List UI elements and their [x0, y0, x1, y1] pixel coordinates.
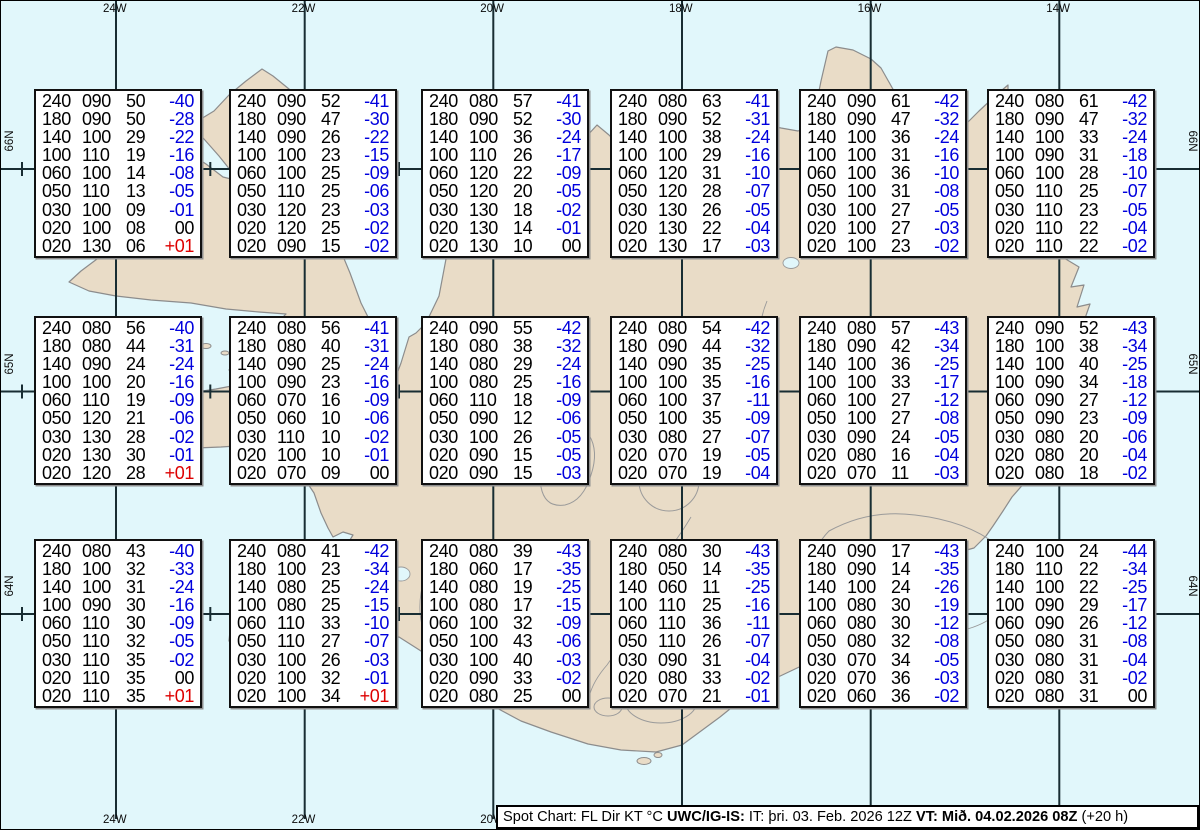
- cell-kt: 17: [513, 596, 539, 614]
- cell-dir: 100: [1035, 542, 1073, 560]
- cell-kt: 52: [321, 92, 347, 110]
- cell-fl: 140: [995, 128, 1029, 146]
- cell-temp: -26: [923, 578, 959, 596]
- cell-temp: -02: [353, 428, 389, 446]
- cell-temp: -40: [158, 319, 194, 337]
- cell-kt: 25: [702, 596, 728, 614]
- cell-temp: -35: [734, 560, 770, 578]
- cell-temp: -05: [158, 182, 194, 200]
- cell-kt: 32: [513, 614, 539, 632]
- cell-kt: 25: [321, 596, 347, 614]
- cell-dir: 110: [82, 391, 120, 409]
- cell-dir: 100: [847, 578, 885, 596]
- cell-kt: 35: [702, 355, 728, 373]
- cell-kt: 40: [321, 337, 347, 355]
- cell-temp: -02: [158, 428, 194, 446]
- cell-temp: -22: [158, 128, 194, 146]
- spot-level-row: 03012023-03: [237, 201, 389, 219]
- spot-level-row: 24009050-40: [42, 92, 194, 110]
- cell-kt: 18: [513, 391, 539, 409]
- spot-level-row: 10008030-19: [807, 596, 959, 614]
- cell-fl: 140: [618, 128, 652, 146]
- spot-level-row: 14010024-26: [807, 578, 959, 596]
- spot-box-66N-3: 24008057-4118009052-3014010036-241001102…: [421, 89, 589, 258]
- cell-kt: 20: [126, 373, 152, 391]
- cell-kt: 11: [891, 464, 917, 482]
- cell-dir: 100: [1035, 578, 1073, 596]
- cell-temp: -09: [353, 164, 389, 182]
- cell-kt: 31: [1079, 632, 1105, 650]
- cell-dir: 080: [277, 337, 315, 355]
- cell-fl: 060: [995, 614, 1029, 632]
- cell-kt: 42: [891, 337, 917, 355]
- cell-fl: 050: [429, 182, 463, 200]
- lon-label-top-18W: 18W: [669, 3, 693, 15]
- cell-temp: -19: [923, 596, 959, 614]
- cell-fl: 020: [995, 219, 1029, 237]
- cell-fl: 020: [429, 219, 463, 237]
- cell-fl: 030: [429, 428, 463, 446]
- cell-kt: 10: [321, 428, 347, 446]
- cell-temp: -02: [545, 201, 581, 219]
- spot-level-row: 02009033-02: [429, 669, 581, 687]
- cell-dir: 090: [1035, 319, 1073, 337]
- spot-level-row: 02013017-03: [618, 237, 770, 255]
- spot-level-row: 24008030-43: [618, 542, 770, 560]
- cell-fl: 030: [807, 651, 841, 669]
- spot-level-row: 02010023-02: [807, 237, 959, 255]
- cell-kt: 30: [891, 614, 917, 632]
- cell-kt: 61: [891, 92, 917, 110]
- spot-level-row: 18009050-28: [42, 110, 194, 128]
- cell-fl: 240: [618, 542, 652, 560]
- spot-level-row: 14009025-24: [237, 355, 389, 373]
- cell-kt: 26: [702, 201, 728, 219]
- spot-level-row: 10011019-16: [42, 146, 194, 164]
- cell-dir: 100: [847, 201, 885, 219]
- cell-temp: -24: [158, 355, 194, 373]
- cell-kt: 22: [1079, 219, 1105, 237]
- cell-temp: -09: [158, 391, 194, 409]
- spot-level-row: 0201103500: [42, 669, 194, 687]
- spot-level-row: 0200700900: [237, 464, 389, 482]
- spot-level-row: 02007019-05: [618, 446, 770, 464]
- cell-kt: 25: [513, 687, 539, 705]
- spot-level-row: 03009031-04: [618, 651, 770, 669]
- cell-kt: 50: [126, 92, 152, 110]
- cell-fl: 180: [42, 560, 76, 578]
- cell-dir: 110: [82, 669, 120, 687]
- cell-dir: 100: [469, 632, 507, 650]
- cell-kt: 31: [1079, 669, 1105, 687]
- cell-fl: 100: [618, 596, 652, 614]
- cell-fl: 140: [42, 578, 76, 596]
- cell-kt: 25: [321, 355, 347, 373]
- cell-dir: 110: [1035, 182, 1073, 200]
- cell-fl: 050: [807, 182, 841, 200]
- cell-fl: 020: [995, 669, 1029, 687]
- cell-fl: 020: [618, 464, 652, 482]
- cell-kt: 52: [513, 110, 539, 128]
- cell-kt: 25: [321, 219, 347, 237]
- spot-level-row: 14010033-24: [995, 128, 1147, 146]
- lat-label-right-65N: 65N: [1186, 353, 1198, 374]
- cell-temp: -12: [923, 614, 959, 632]
- status-bar: Spot Chart: FL Dir KT °C UWC/IG-IS: IT: …: [496, 805, 1199, 829]
- cell-dir: 130: [82, 237, 120, 255]
- spot-level-row: 02013022-04: [618, 219, 770, 237]
- cell-temp: -07: [734, 182, 770, 200]
- cell-temp: -10: [1111, 164, 1147, 182]
- spot-level-row: 0201301000: [429, 237, 581, 255]
- cell-kt: 30: [126, 596, 152, 614]
- spot-level-row: 14006011-25: [618, 578, 770, 596]
- cell-fl: 240: [429, 92, 463, 110]
- cell-dir: 060: [847, 687, 885, 705]
- cell-fl: 140: [807, 355, 841, 373]
- cell-kt: 32: [321, 669, 347, 687]
- cell-temp: +01: [158, 464, 194, 482]
- spot-level-row: 05008032-08: [807, 632, 959, 650]
- cell-dir: 090: [469, 110, 507, 128]
- cell-kt: 25: [513, 373, 539, 391]
- cell-dir: 090: [277, 128, 315, 146]
- cell-dir: 100: [82, 578, 120, 596]
- cell-dir: 070: [658, 687, 696, 705]
- cell-fl: 030: [995, 651, 1029, 669]
- cell-temp: -03: [923, 464, 959, 482]
- lat-label-right-66N: 66N: [1186, 130, 1198, 151]
- spot-level-row: 0200803100: [995, 687, 1147, 705]
- spot-level-row: 14008019-25: [429, 578, 581, 596]
- cell-dir: 100: [82, 560, 120, 578]
- cell-fl: 140: [995, 355, 1029, 373]
- cell-fl: 180: [995, 110, 1029, 128]
- spot-box-65N-5: 24008057-4318009042-3414010036-251001003…: [799, 316, 967, 485]
- cell-dir: 070: [277, 391, 315, 409]
- cell-temp: -34: [353, 560, 389, 578]
- cell-fl: 100: [42, 596, 76, 614]
- cell-temp: 00: [353, 464, 389, 482]
- cell-fl: 100: [995, 373, 1029, 391]
- cell-dir: 100: [658, 391, 696, 409]
- spot-level-row: 24008056-41: [237, 319, 389, 337]
- cell-kt: 47: [1079, 110, 1105, 128]
- cell-kt: 21: [126, 409, 152, 427]
- cell-kt: 34: [1079, 373, 1105, 391]
- cell-temp: -41: [734, 92, 770, 110]
- cell-dir: 090: [469, 669, 507, 687]
- cell-fl: 100: [237, 373, 271, 391]
- spot-level-row: 02013030-01: [42, 446, 194, 464]
- cell-temp: -32: [545, 337, 581, 355]
- spot-level-row: 24008043-40: [42, 542, 194, 560]
- cell-fl: 100: [618, 146, 652, 164]
- cell-dir: 090: [847, 337, 885, 355]
- cell-dir: 090: [1035, 373, 1073, 391]
- spot-level-row: 18010038-34: [995, 337, 1147, 355]
- spot-level-row: 06008030-12: [807, 614, 959, 632]
- cell-kt: 29: [702, 146, 728, 164]
- cell-kt: 38: [702, 128, 728, 146]
- cell-dir: 110: [277, 428, 315, 446]
- cell-fl: 020: [429, 687, 463, 705]
- cell-fl: 020: [42, 669, 76, 687]
- cell-dir: 080: [277, 319, 315, 337]
- spot-level-row: 02011022-02: [995, 237, 1147, 255]
- cell-temp: -05: [923, 428, 959, 446]
- cell-dir: 080: [1035, 669, 1073, 687]
- cell-dir: 090: [1035, 391, 1073, 409]
- cell-kt: 16: [891, 446, 917, 464]
- cell-kt: 31: [891, 146, 917, 164]
- cell-fl: 020: [42, 219, 76, 237]
- cell-kt: 23: [321, 201, 347, 219]
- cell-dir: 090: [277, 373, 315, 391]
- spot-level-row: 0200802500: [429, 687, 581, 705]
- cell-fl: 050: [429, 632, 463, 650]
- cell-fl: 060: [42, 614, 76, 632]
- cell-fl: 050: [618, 632, 652, 650]
- cell-dir: 080: [1035, 446, 1073, 464]
- cell-dir: 110: [1035, 219, 1073, 237]
- cell-kt: 14: [513, 219, 539, 237]
- cell-dir: 100: [277, 164, 315, 182]
- cell-kt: 26: [321, 651, 347, 669]
- cell-fl: 180: [618, 337, 652, 355]
- cell-kt: 57: [891, 319, 917, 337]
- cell-kt: 27: [891, 391, 917, 409]
- cell-temp: -32: [923, 110, 959, 128]
- cell-kt: 26: [513, 146, 539, 164]
- cell-kt: 20: [1079, 428, 1105, 446]
- cell-fl: 240: [237, 542, 271, 560]
- cell-fl: 100: [807, 146, 841, 164]
- cell-fl: 100: [429, 596, 463, 614]
- cell-fl: 240: [995, 319, 1029, 337]
- cell-temp: -43: [734, 542, 770, 560]
- spot-level-row: 24008061-42: [995, 92, 1147, 110]
- cell-fl: 100: [42, 373, 76, 391]
- spot-level-row: 24008063-41: [618, 92, 770, 110]
- cell-temp: -15: [353, 596, 389, 614]
- cell-kt: 06: [126, 237, 152, 255]
- cell-fl: 100: [807, 596, 841, 614]
- spot-level-row: 14010036-25: [807, 355, 959, 373]
- cell-kt: 25: [1079, 182, 1105, 200]
- cell-dir: 130: [469, 201, 507, 219]
- cell-temp: -06: [353, 409, 389, 427]
- cell-dir: 110: [658, 596, 696, 614]
- cell-temp: -43: [1111, 319, 1147, 337]
- cell-fl: 020: [995, 687, 1029, 705]
- cell-temp: -16: [158, 373, 194, 391]
- cell-temp: -25: [1111, 355, 1147, 373]
- cell-kt: 23: [891, 237, 917, 255]
- cell-kt: 40: [1079, 355, 1105, 373]
- cell-dir: 080: [658, 92, 696, 110]
- cell-dir: 090: [82, 596, 120, 614]
- cell-kt: 22: [702, 219, 728, 237]
- cell-temp: -25: [734, 578, 770, 596]
- cell-fl: 060: [618, 391, 652, 409]
- cell-fl: 020: [618, 446, 652, 464]
- spot-level-row: 02013014-01: [429, 219, 581, 237]
- spot-level-row: 06011019-09: [42, 391, 194, 409]
- cell-temp: -05: [545, 428, 581, 446]
- spot-level-row: 06009027-12: [995, 391, 1147, 409]
- cell-fl: 020: [429, 669, 463, 687]
- cell-dir: 090: [277, 110, 315, 128]
- cell-temp: 00: [158, 669, 194, 687]
- cell-temp: -09: [158, 614, 194, 632]
- cell-fl: 030: [237, 651, 271, 669]
- spot-level-row: 24009017-43: [807, 542, 959, 560]
- spot-level-row: 06012031-10: [618, 164, 770, 182]
- cell-temp: -16: [158, 146, 194, 164]
- cell-temp: -10: [353, 614, 389, 632]
- cell-kt: 52: [702, 110, 728, 128]
- spot-level-row: 18010023-34: [237, 560, 389, 578]
- cell-temp: -34: [923, 337, 959, 355]
- spot-level-row: 14009026-22: [237, 128, 389, 146]
- cell-fl: 020: [42, 687, 76, 705]
- spot-level-row: 05009023-09: [995, 409, 1147, 427]
- cell-fl: 180: [807, 560, 841, 578]
- cell-kt: 37: [702, 391, 728, 409]
- cell-fl: 060: [429, 164, 463, 182]
- spot-level-row: 02009015-05: [429, 446, 581, 464]
- cell-temp: -08: [923, 409, 959, 427]
- cell-dir: 090: [82, 355, 120, 373]
- cell-temp: -43: [923, 542, 959, 560]
- cell-fl: 020: [429, 464, 463, 482]
- spot-level-row: 05006010-06: [237, 409, 389, 427]
- cell-kt: 43: [513, 632, 539, 650]
- cell-dir: 110: [277, 632, 315, 650]
- cell-temp: -04: [734, 651, 770, 669]
- cell-fl: 020: [237, 446, 271, 464]
- spot-level-row: 10008017-15: [429, 596, 581, 614]
- cell-dir: 080: [469, 337, 507, 355]
- cell-kt: 23: [1079, 201, 1105, 219]
- spot-level-row: 10009030-16: [42, 596, 194, 614]
- cell-temp: -33: [158, 560, 194, 578]
- spot-level-row: 06007016-09: [237, 391, 389, 409]
- spot-level-row: 06011030-09: [42, 614, 194, 632]
- spot-level-row: 18011022-34: [995, 560, 1147, 578]
- cell-kt: 18: [1079, 464, 1105, 482]
- cell-dir: 090: [277, 355, 315, 373]
- cell-dir: 090: [469, 446, 507, 464]
- spot-level-row: 06010028-10: [995, 164, 1147, 182]
- cell-kt: 24: [1079, 542, 1105, 560]
- cell-temp: -03: [353, 201, 389, 219]
- cell-dir: 090: [82, 92, 120, 110]
- lon-label-bottom-22W: 22W: [292, 814, 316, 826]
- cell-temp: -01: [158, 446, 194, 464]
- cell-dir: 110: [1035, 201, 1073, 219]
- status-forecast-offset: (+20 h): [1077, 809, 1128, 825]
- cell-kt: 31: [702, 651, 728, 669]
- cell-kt: 36: [891, 669, 917, 687]
- spot-level-row: 10010020-16: [42, 373, 194, 391]
- cell-temp: -04: [923, 446, 959, 464]
- cell-temp: -02: [923, 687, 959, 705]
- cell-fl: 180: [429, 560, 463, 578]
- cell-temp: -08: [1111, 632, 1147, 650]
- spot-level-row: 14008029-24: [429, 355, 581, 373]
- cell-fl: 140: [237, 128, 271, 146]
- cell-dir: 100: [658, 146, 696, 164]
- cell-dir: 110: [82, 651, 120, 669]
- cell-kt: 11: [702, 578, 728, 596]
- spot-level-row: 05011027-07: [237, 632, 389, 650]
- cell-temp: -15: [545, 596, 581, 614]
- spot-level-row: 03009024-05: [807, 428, 959, 446]
- cell-dir: 080: [469, 542, 507, 560]
- cell-kt: 35: [126, 669, 152, 687]
- cell-fl: 030: [429, 651, 463, 669]
- cell-kt: 25: [321, 164, 347, 182]
- cell-temp: -02: [1111, 464, 1147, 482]
- cell-fl: 100: [995, 596, 1029, 614]
- cell-kt: 22: [1079, 237, 1105, 255]
- spot-level-row: 14010036-24: [807, 128, 959, 146]
- spot-level-row: 03013018-02: [429, 201, 581, 219]
- spot-level-row: 18009014-35: [807, 560, 959, 578]
- cell-dir: 090: [658, 355, 696, 373]
- spot-level-row: 18009047-32: [995, 110, 1147, 128]
- cell-dir: 100: [277, 669, 315, 687]
- cell-kt: 36: [891, 687, 917, 705]
- spot-level-row: 05012021-06: [42, 409, 194, 427]
- cell-fl: 100: [807, 373, 841, 391]
- spot-level-row: 24009052-43: [995, 319, 1147, 337]
- cell-dir: 100: [1035, 355, 1073, 373]
- cell-temp: -01: [545, 219, 581, 237]
- cell-fl: 050: [42, 409, 76, 427]
- cell-dir: 090: [658, 337, 696, 355]
- cell-fl: 020: [618, 669, 652, 687]
- cell-dir: 130: [658, 219, 696, 237]
- cell-fl: 020: [42, 464, 76, 482]
- spot-level-row: 24010024-44: [995, 542, 1147, 560]
- spot-box-64N-2: 24008041-4218010023-3414008025-241000802…: [229, 539, 397, 708]
- cell-dir: 100: [847, 373, 885, 391]
- spot-level-row: 10008025-15: [237, 596, 389, 614]
- cell-fl: 020: [237, 219, 271, 237]
- cell-temp: -16: [734, 146, 770, 164]
- cell-dir: 110: [658, 614, 696, 632]
- spot-level-row: 05011026-07: [618, 632, 770, 650]
- cell-dir: 100: [847, 164, 885, 182]
- cell-fl: 140: [995, 578, 1029, 596]
- cell-fl: 240: [995, 542, 1029, 560]
- cell-temp: -01: [353, 446, 389, 464]
- spot-level-row: 03013028-02: [42, 428, 194, 446]
- cell-kt: 23: [321, 373, 347, 391]
- cell-kt: 31: [1079, 146, 1105, 164]
- spot-level-row: 24008056-40: [42, 319, 194, 337]
- cell-fl: 180: [807, 110, 841, 128]
- cell-temp: -07: [734, 632, 770, 650]
- cell-fl: 050: [42, 182, 76, 200]
- cell-dir: 080: [82, 542, 120, 560]
- cell-fl: 180: [429, 110, 463, 128]
- cell-temp: -11: [734, 614, 770, 632]
- spot-level-row: 14010031-24: [42, 578, 194, 596]
